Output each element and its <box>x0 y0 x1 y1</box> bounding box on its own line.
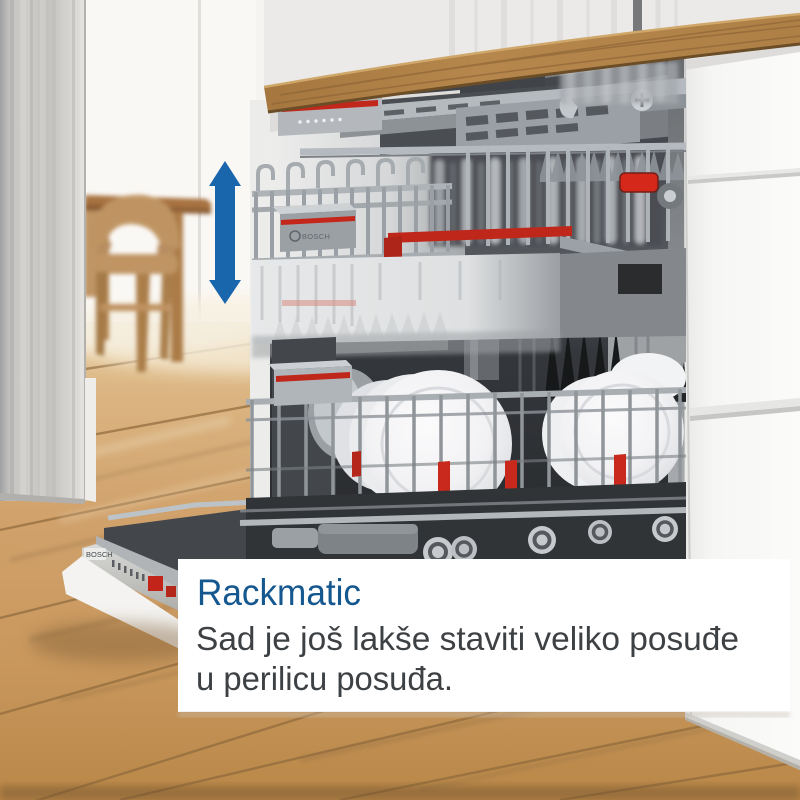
svg-text:u perilicu posuđa.: u perilicu posuđa. <box>196 660 453 697</box>
svg-text:Sad je još lakše staviti veli: Sad je još lakše staviti veliko posuđe <box>196 620 739 657</box>
svg-text:Rackmatic: Rackmatic <box>197 572 361 613</box>
svg-text:BOSCH: BOSCH <box>302 232 330 241</box>
svg-text:BOSCH: BOSCH <box>86 550 113 559</box>
